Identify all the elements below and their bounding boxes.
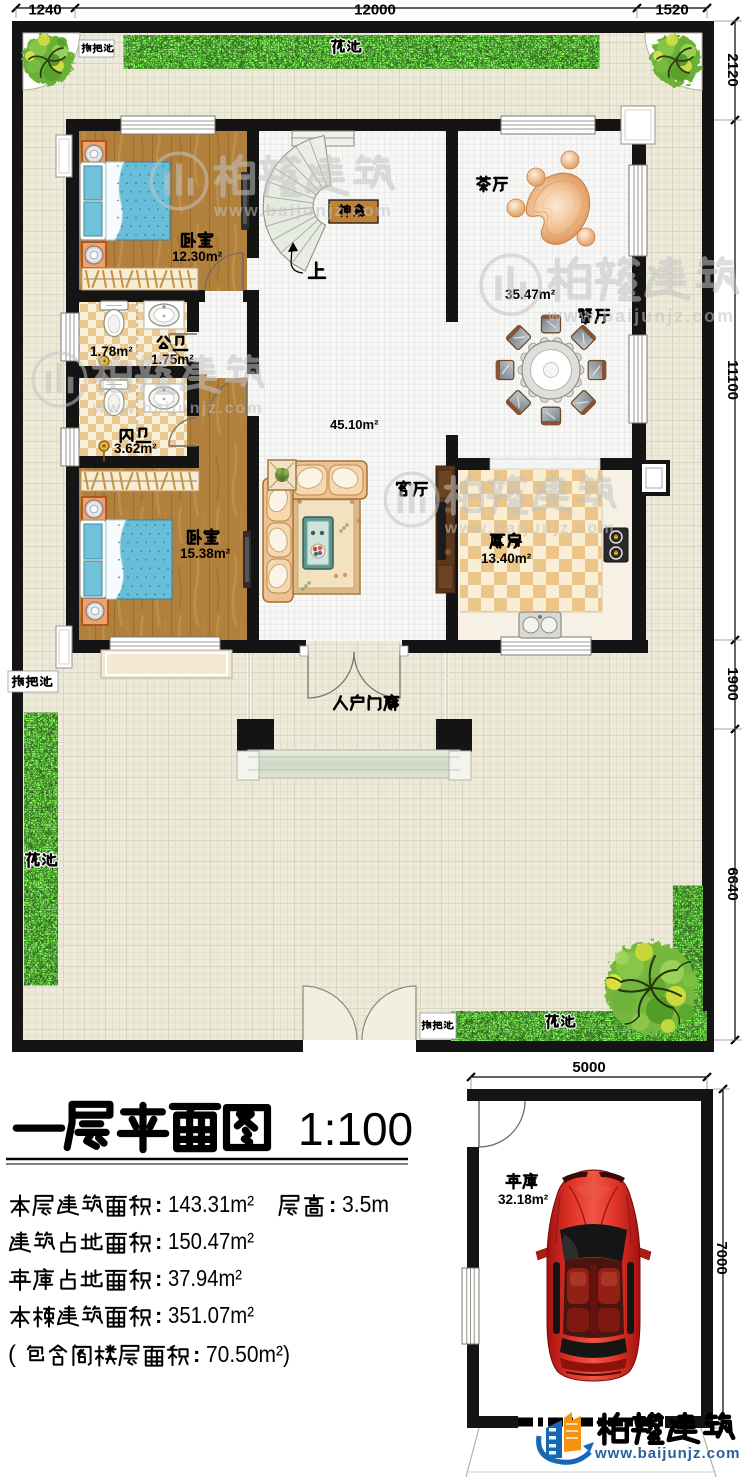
svg-text:15.38m²: 15.38m² bbox=[180, 546, 231, 561]
svg-text:www.baijunjz.com: www.baijunjz.com bbox=[444, 519, 616, 537]
svg-text:12000: 12000 bbox=[354, 2, 396, 19]
svg-text:1520: 1520 bbox=[655, 2, 688, 19]
svg-text:351.07m²: 351.07m² bbox=[168, 1302, 254, 1328]
svg-text:12.30m²: 12.30m² bbox=[172, 249, 223, 264]
svg-text:5000: 5000 bbox=[572, 1059, 605, 1076]
svg-text::: : bbox=[155, 1229, 162, 1254]
svg-text:2120: 2120 bbox=[724, 53, 741, 86]
svg-text:www.baijunjz.com: www.baijunjz.com bbox=[547, 306, 735, 326]
svg-text:6640: 6640 bbox=[724, 867, 741, 900]
svg-text:13.40m²: 13.40m² bbox=[481, 551, 532, 566]
svg-text:150.47m²: 150.47m² bbox=[168, 1228, 254, 1254]
svg-text:3.62m²: 3.62m² bbox=[114, 441, 157, 456]
svg-text::: : bbox=[155, 1192, 162, 1217]
svg-text:www.baijunjz.com: www.baijunjz.com bbox=[92, 399, 264, 417]
svg-text:143.31m²: 143.31m² bbox=[168, 1191, 254, 1217]
svg-text:70.50m²): 70.50m²) bbox=[206, 1341, 290, 1367]
svg-text:1900: 1900 bbox=[724, 667, 741, 700]
svg-text:7000: 7000 bbox=[713, 1241, 730, 1274]
svg-text:1240: 1240 bbox=[28, 2, 61, 19]
svg-text::: : bbox=[155, 1303, 162, 1328]
svg-text:11100: 11100 bbox=[724, 360, 741, 400]
svg-text:1:100: 1:100 bbox=[298, 1103, 413, 1155]
svg-text:45.10m²: 45.10m² bbox=[330, 417, 379, 432]
svg-text:www.baijunjz.com: www.baijunjz.com bbox=[213, 201, 393, 220]
svg-text::: : bbox=[329, 1192, 336, 1217]
svg-text:1.78m²: 1.78m² bbox=[90, 344, 133, 359]
svg-text:32.18m²: 32.18m² bbox=[498, 1192, 549, 1207]
svg-text:(: ( bbox=[8, 1341, 16, 1368]
svg-text:37.94m²: 37.94m² bbox=[168, 1265, 242, 1291]
svg-text::: : bbox=[155, 1266, 162, 1291]
svg-text:www.baijunjz.com: www.baijunjz.com bbox=[594, 1445, 740, 1462]
svg-text::: : bbox=[193, 1342, 200, 1367]
svg-text:3.5m: 3.5m bbox=[342, 1191, 389, 1217]
